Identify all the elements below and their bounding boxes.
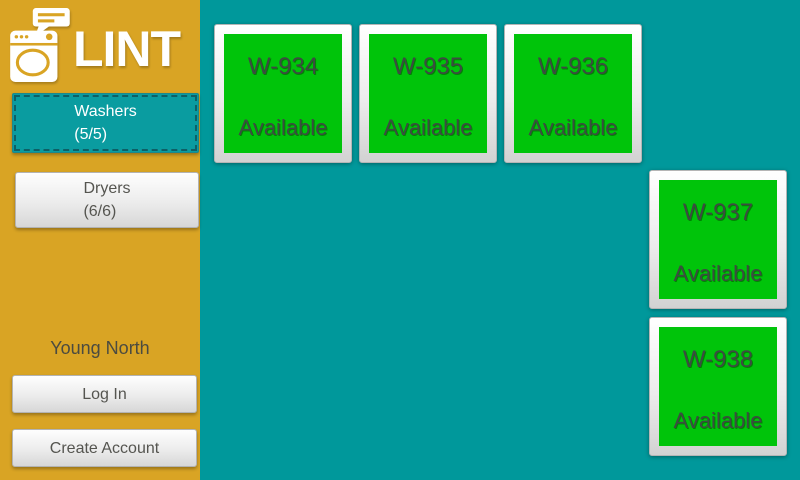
create-account-button[interactable]: Create Account <box>12 429 197 467</box>
machine-status: Available <box>239 115 328 141</box>
machine-tile-w-936[interactable]: W-936 Available <box>504 24 642 163</box>
machine-tile-w-938[interactable]: W-938 Available <box>649 317 787 456</box>
machine-status: Available <box>384 115 473 141</box>
machine-tile-face: W-935 Available <box>369 34 487 153</box>
dryers-tab[interactable]: Dryers(6/6) <box>15 172 199 228</box>
app-title: LINT <box>73 24 180 74</box>
machine-tile-face: W-938 Available <box>659 327 777 446</box>
machine-name: W-934 <box>248 53 318 81</box>
dryers-tab-text: Dryers(6/6) <box>83 177 130 223</box>
machine-tile-face: W-934 Available <box>224 34 342 153</box>
machine-tile-w-935[interactable]: W-935 Available <box>359 24 497 163</box>
log-in-button[interactable]: Log In <box>12 375 197 413</box>
machine-status: Available <box>529 115 618 141</box>
washing-machine-icon <box>10 6 72 82</box>
machine-name: W-938 <box>683 346 753 374</box>
washers-tab[interactable]: Washers(5/5) <box>12 93 199 153</box>
machine-tile-face: W-937 Available <box>659 180 777 299</box>
location-label: Young North <box>0 338 200 359</box>
machine-name: W-937 <box>683 199 753 227</box>
dryers-tab-label: Dryers <box>83 180 130 197</box>
dryers-tab-count: (6/6) <box>83 203 116 220</box>
washers-tab-text: Washers(5/5) <box>74 100 137 146</box>
machines-board: W-934 Available W-935 Available W-936 Av… <box>200 0 800 480</box>
machine-status: Available <box>674 408 763 434</box>
washers-tab-count: (5/5) <box>74 126 107 143</box>
sidebar: LINT Washers(5/5) Dryers(6/6) Young Nort… <box>0 0 200 480</box>
machine-tile-w-934[interactable]: W-934 Available <box>214 24 352 163</box>
machine-name: W-935 <box>393 53 463 81</box>
machine-name: W-936 <box>538 53 608 81</box>
washers-tab-label: Washers <box>74 103 137 120</box>
machine-tile-face: W-936 Available <box>514 34 632 153</box>
machine-tile-w-937[interactable]: W-937 Available <box>649 170 787 309</box>
machine-status: Available <box>674 261 763 287</box>
app-logo: LINT <box>0 0 200 90</box>
